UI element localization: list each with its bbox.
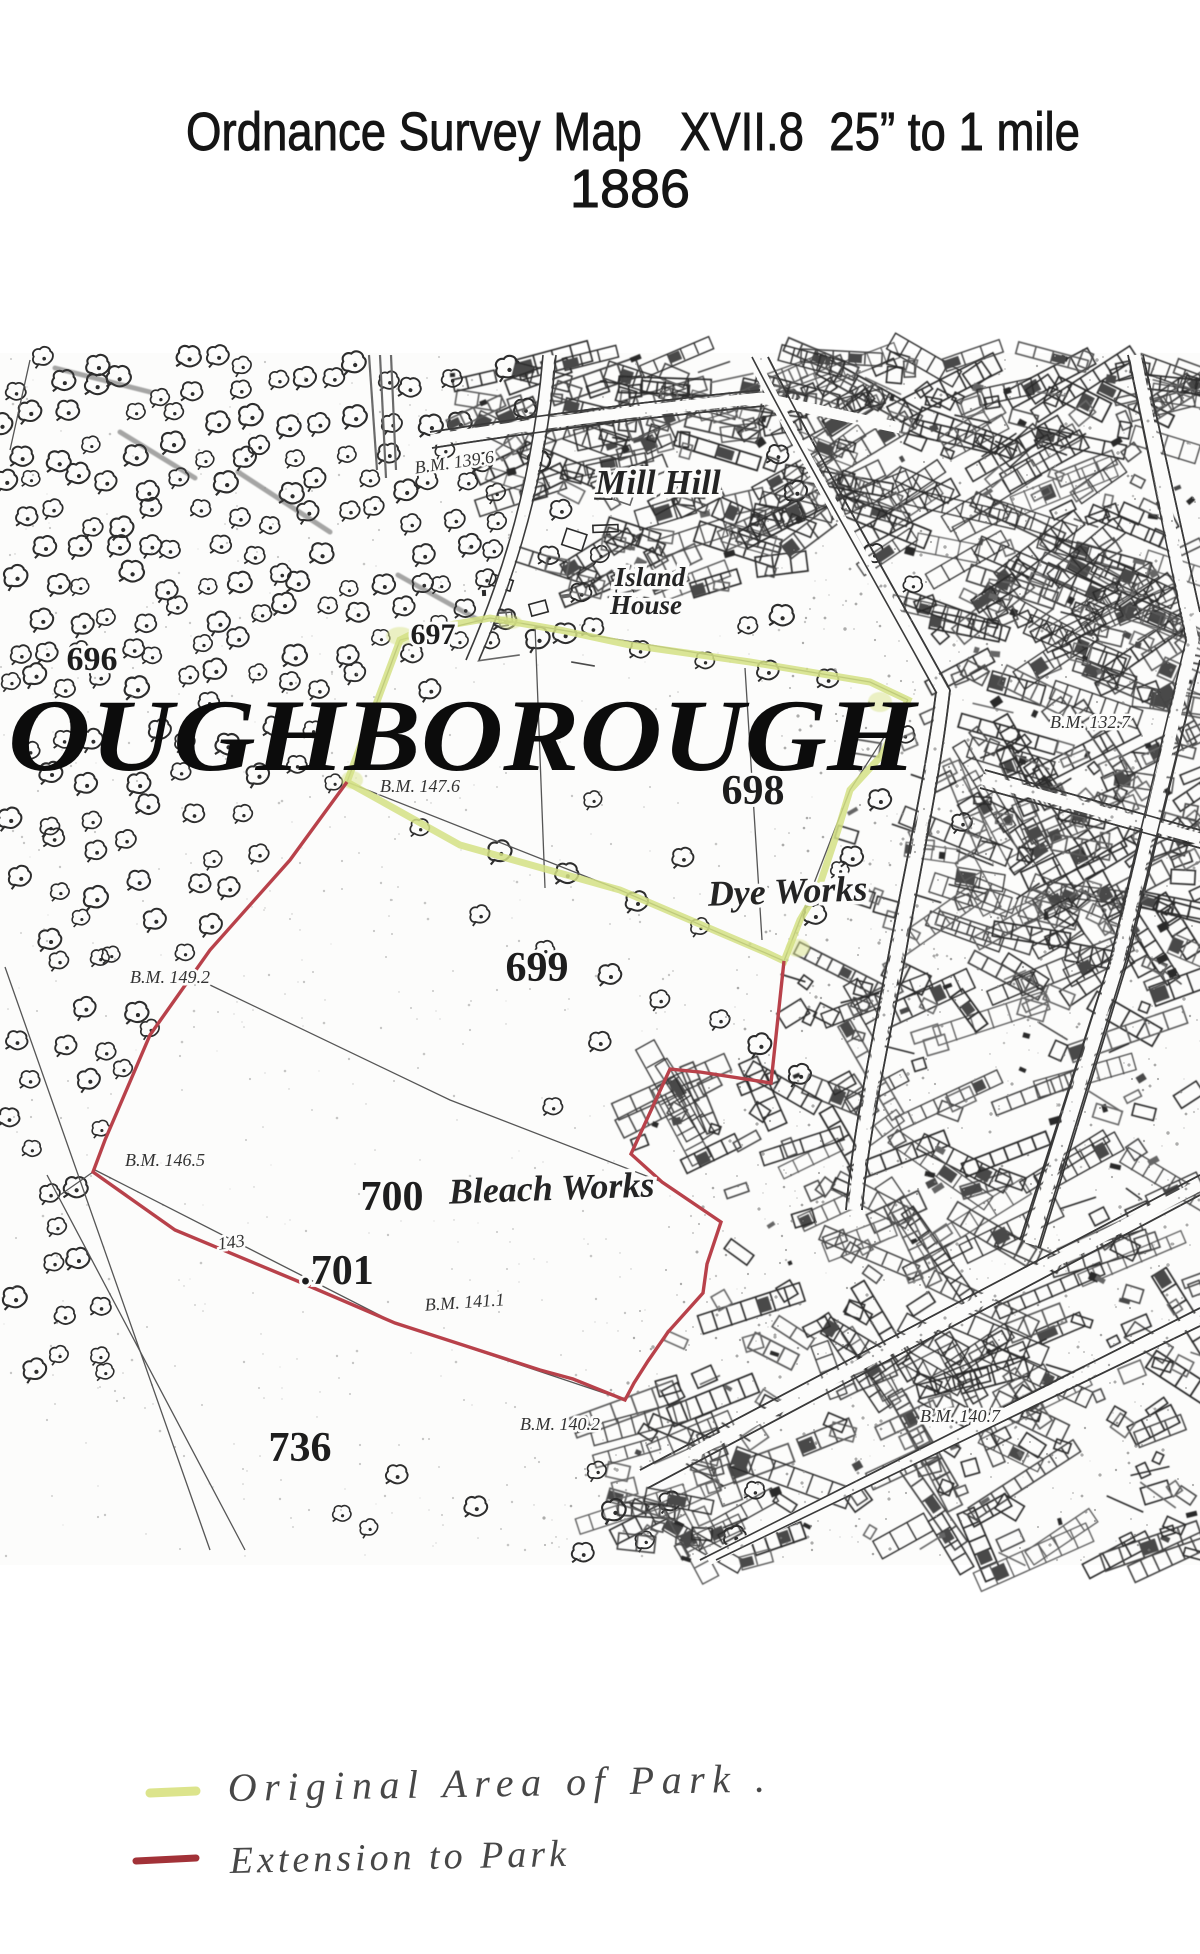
svg-text:Bleach Works: Bleach Works (447, 1164, 655, 1211)
svg-text:699: 699 (506, 945, 569, 991)
svg-text:B.M. 140.2: B.M. 140.2 (520, 1414, 600, 1434)
svg-text:Extension to Park: Extension to Park (228, 1833, 570, 1882)
svg-text:696: 696 (67, 641, 118, 678)
svg-text:B.M. 146.5: B.M. 146.5 (125, 1150, 205, 1170)
svg-text:B.M. 149.2: B.M. 149.2 (130, 967, 210, 987)
svg-text:736: 736 (269, 1425, 332, 1471)
svg-text:143: 143 (216, 1230, 246, 1254)
svg-text:B.M. 132.7: B.M. 132.7 (1050, 712, 1131, 732)
svg-text:1886: 1886 (570, 159, 690, 219)
svg-text:697: 697 (411, 618, 456, 651)
svg-text:B.M. 147.6: B.M. 147.6 (380, 776, 460, 796)
svg-text:Mill Hill: Mill Hill (594, 463, 721, 502)
svg-text:700: 700 (361, 1174, 424, 1220)
svg-text:Ordnance Survey Map XVII.8: Ordnance Survey Map XVII.8 25” to 1 mile (186, 102, 1080, 162)
svg-text:House: House (609, 590, 682, 620)
svg-text:Original Area of Park .: Original Area of Park . (227, 1755, 772, 1809)
svg-text:698: 698 (722, 768, 785, 814)
svg-text:.701: .701 (300, 1248, 374, 1294)
svg-text:Dye Works: Dye Works (706, 868, 868, 914)
svg-text:Island: Island (614, 562, 686, 592)
svg-text:B.M. 140.7: B.M. 140.7 (920, 1406, 1001, 1426)
